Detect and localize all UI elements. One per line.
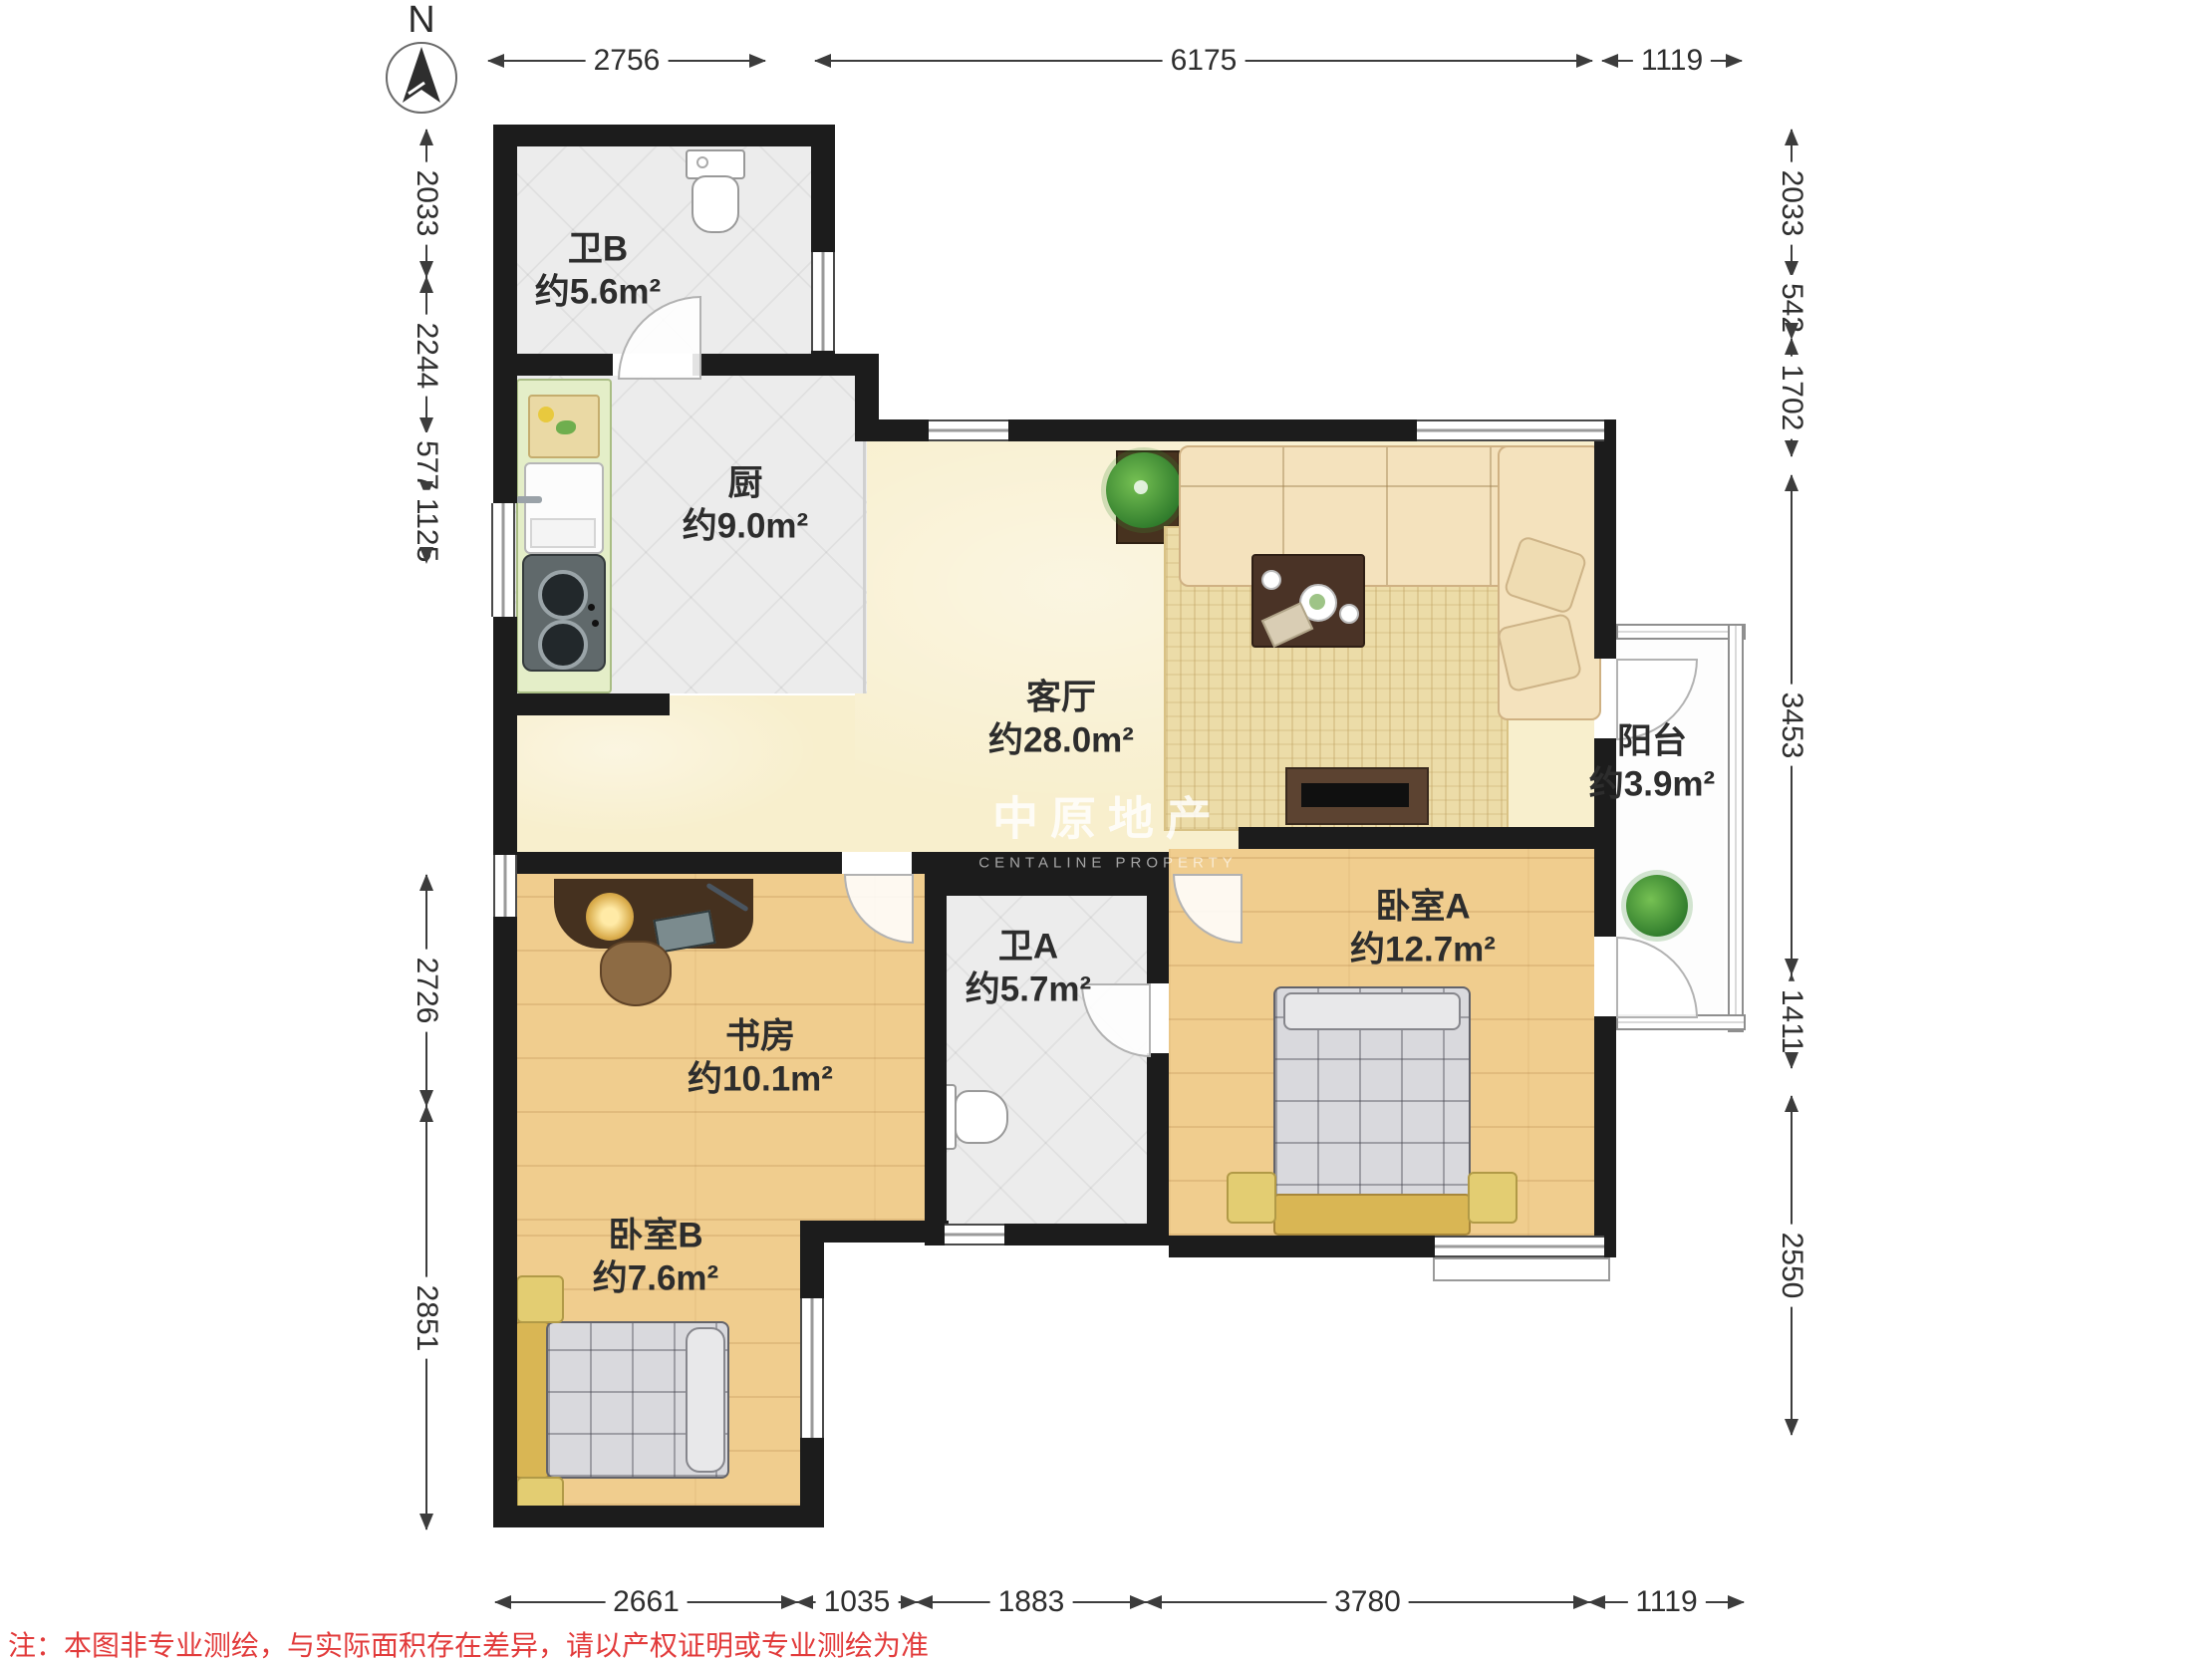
- balcony-name: 阳台: [1589, 720, 1715, 763]
- bathroom-b-name: 卫B: [535, 228, 661, 271]
- wall-bedroom-a-bottom-left: [1169, 1236, 1435, 1257]
- dim-label: 2033: [410, 162, 443, 245]
- bedroom-a-nightstand-right: [1468, 1172, 1518, 1224]
- dim-right-1702: 1702: [1791, 339, 1793, 456]
- bedroom-b-area: 约7.6m²: [593, 1257, 718, 1300]
- bedroom-a-pillows: [1283, 992, 1461, 1030]
- kitchen-label: 厨 约9.0m²: [683, 462, 808, 547]
- cup-1: [1261, 570, 1281, 590]
- dim-label: 2726: [410, 950, 443, 1032]
- bathroom-a-label: 卫A 约5.7m²: [966, 926, 1091, 1010]
- wall-kitchen-bottom: [493, 693, 670, 715]
- wall-bathroom-b-top: [493, 125, 835, 146]
- wall-living-right: [1594, 419, 1616, 659]
- study-area: 约10.1m²: [688, 1058, 833, 1101]
- dim-left-2033: 2033: [425, 130, 427, 277]
- dim-top-6175: 6175: [815, 60, 1592, 62]
- bedroom-a-label: 卧室A 约12.7m²: [1350, 886, 1496, 970]
- dim-bottom-1883: 1883: [917, 1601, 1146, 1603]
- bedroom-b-label: 卧室B 约7.6m²: [593, 1215, 718, 1299]
- wall-left-lower: [493, 917, 517, 1527]
- living-room-name: 客厅: [988, 677, 1134, 719]
- dim-label: 1035: [816, 1585, 899, 1619]
- window-bathroom-b: [811, 252, 835, 351]
- balcony-rail-top: [1616, 624, 1746, 640]
- dim-bottom-2661: 2661: [495, 1601, 797, 1603]
- stove-knob-2: [592, 620, 599, 627]
- kitchen-living-divider-line: [863, 441, 866, 693]
- wall-bathroom-a-top: [945, 874, 1147, 896]
- dim-label: 1702: [1775, 357, 1808, 439]
- dim-label: 1119: [1633, 44, 1711, 78]
- wall-living-top-a: [855, 419, 929, 441]
- bedroom-b-name: 卧室B: [593, 1215, 718, 1257]
- wall-bedroom-a-right: [1594, 1016, 1616, 1257]
- window-living-north: [1417, 419, 1604, 441]
- wall-living-bottom-east: [912, 852, 1169, 874]
- wall-left-middle: [493, 617, 517, 855]
- plant-flower: [1134, 480, 1148, 494]
- dim-label: 2244: [410, 314, 443, 397]
- wall-bedroom-b-right-upper: [800, 1221, 824, 1298]
- balcony-area: 约3.9m²: [1589, 763, 1715, 806]
- dim-right-542: 542: [1791, 277, 1793, 339]
- study-name: 书房: [688, 1015, 833, 1058]
- bathroom-a-name: 卫A: [966, 926, 1091, 968]
- kitchen-area: 约9.0m²: [683, 505, 808, 548]
- vegetable-garnish: [556, 420, 576, 434]
- stove-knob-1: [588, 604, 595, 611]
- window-sill-bedroom-a: [1433, 1257, 1610, 1281]
- dim-bottom-1035: 1035: [797, 1601, 917, 1603]
- plate-food: [1309, 594, 1325, 610]
- bathroom-b-label: 卫B 约5.6m²: [535, 228, 661, 313]
- window-kitchen-west: [491, 503, 515, 617]
- wall-step-horizontal: [811, 354, 879, 376]
- sink-basin-divider: [530, 518, 596, 548]
- wall-bathroom-a-right-lower: [1147, 1053, 1169, 1245]
- dim-left-1125: 1125: [425, 497, 427, 563]
- dim-label: 3453: [1775, 684, 1808, 766]
- bedroom-a-name: 卧室A: [1350, 886, 1496, 929]
- dim-left-2851: 2851: [425, 1106, 427, 1529]
- disclaimer-note: 注：本图非专业测绘，与实际面积存在差异，请以产权证明或专业测绘为准: [8, 1624, 929, 1659]
- bathroom-a-area: 约5.7m²: [966, 968, 1091, 1011]
- window-living-west: [493, 855, 517, 917]
- wall-bathroom-b-right-upper: [811, 146, 835, 252]
- office-chair: [600, 941, 672, 1006]
- wall-bathroom-b-divider-left: [515, 354, 613, 376]
- cup-2: [1339, 604, 1359, 624]
- compass-needle-icon: [384, 40, 459, 116]
- entry-door-opening: [929, 419, 1008, 441]
- bedroom-b-quilt-roll: [686, 1327, 725, 1473]
- dim-label: 2756: [586, 44, 669, 78]
- sink-faucet: [516, 496, 542, 503]
- tv-screen: [1301, 783, 1409, 807]
- toilet-a-bowl: [955, 1090, 1008, 1144]
- dim-right-2550: 2550: [1791, 1096, 1793, 1435]
- wall-living-top-b: [1008, 419, 1417, 441]
- balcony-label: 阳台 约3.9m²: [1589, 720, 1715, 805]
- dim-label: 542: [1775, 275, 1808, 341]
- wall-bathroom-a-bottom-right: [1004, 1224, 1147, 1245]
- lemon-garnish: [538, 407, 554, 422]
- dim-top-2756: 2756: [488, 60, 765, 62]
- dim-label: 1411: [1775, 981, 1808, 1062]
- dim-label: 1119: [1627, 1585, 1705, 1619]
- wall-living-bottom-west: [515, 852, 842, 874]
- living-room-area: 约28.0m²: [988, 719, 1134, 762]
- window-bedroom-a: [1435, 1236, 1604, 1257]
- stove-burner-1: [538, 570, 588, 620]
- wall-bedroom-a-top: [1239, 827, 1616, 849]
- living-room-label: 客厅 约28.0m²: [988, 677, 1134, 761]
- dim-label: 2661: [605, 1585, 688, 1619]
- wall-bedroom-b-bottom: [493, 1506, 824, 1527]
- dim-label: 1883: [990, 1585, 1073, 1619]
- dim-top-1119: 1119: [1602, 60, 1742, 62]
- floor-plan-canvas: 卫B 约5.6m² 厨 约9.0m² 客厅 约28.0m² 阳台 约3.9m² …: [0, 0, 2212, 1659]
- dim-left-2726: 2726: [425, 875, 427, 1106]
- balcony-plant: [1626, 875, 1688, 937]
- wall-bathroom-a-left: [925, 874, 947, 1245]
- dim-label: 3780: [1326, 1585, 1409, 1619]
- dim-right-3453: 3453: [1791, 475, 1793, 974]
- window-bathroom-a: [945, 1224, 1004, 1245]
- wall-left-upper: [493, 125, 517, 503]
- dim-label: 2851: [410, 1276, 443, 1359]
- dim-left-2244: 2244: [425, 277, 427, 433]
- dim-label: 2033: [1775, 162, 1808, 245]
- wall-bedroom-a-bottom-stub: [1604, 1236, 1616, 1257]
- compass: N: [377, 0, 466, 121]
- dim-bottom-1119: 1119: [1589, 1601, 1744, 1603]
- bedroom-a-nightstand-left: [1227, 1172, 1276, 1224]
- balcony-rail-right: [1728, 624, 1744, 1032]
- window-bedroom-b: [800, 1298, 824, 1438]
- study-desk: [554, 879, 753, 949]
- dim-right-2033: 2033: [1791, 130, 1793, 277]
- dim-label: 2550: [1775, 1225, 1808, 1307]
- toilet-b-button: [696, 156, 708, 168]
- dim-label: 6175: [1163, 44, 1245, 78]
- living-room-floor-west: [515, 695, 855, 852]
- bathroom-b-area: 约5.6m²: [535, 271, 661, 314]
- bedroom-b-headboard: [514, 1321, 550, 1479]
- kitchen-name: 厨: [683, 462, 808, 505]
- bedroom-a-bed-frame: [1273, 1194, 1471, 1236]
- study-label: 书房 约10.1m²: [688, 1015, 833, 1100]
- dim-left-577: 577: [425, 433, 427, 497]
- bedroom-a-area: 约12.7m²: [1350, 929, 1496, 971]
- wall-bathroom-a-right-upper: [1147, 874, 1169, 983]
- stove-burner-2: [538, 620, 588, 670]
- dim-label: 1125: [410, 490, 443, 571]
- toilet-b-bowl: [691, 175, 739, 233]
- dim-label: 577: [410, 432, 443, 498]
- bedroom-b-nightstand-top: [516, 1275, 564, 1323]
- desk-lamp: [586, 893, 634, 941]
- dim-right-1411: 1411: [1791, 974, 1793, 1068]
- compass-north-label: N: [377, 0, 466, 40]
- dim-bottom-3780: 3780: [1146, 1601, 1589, 1603]
